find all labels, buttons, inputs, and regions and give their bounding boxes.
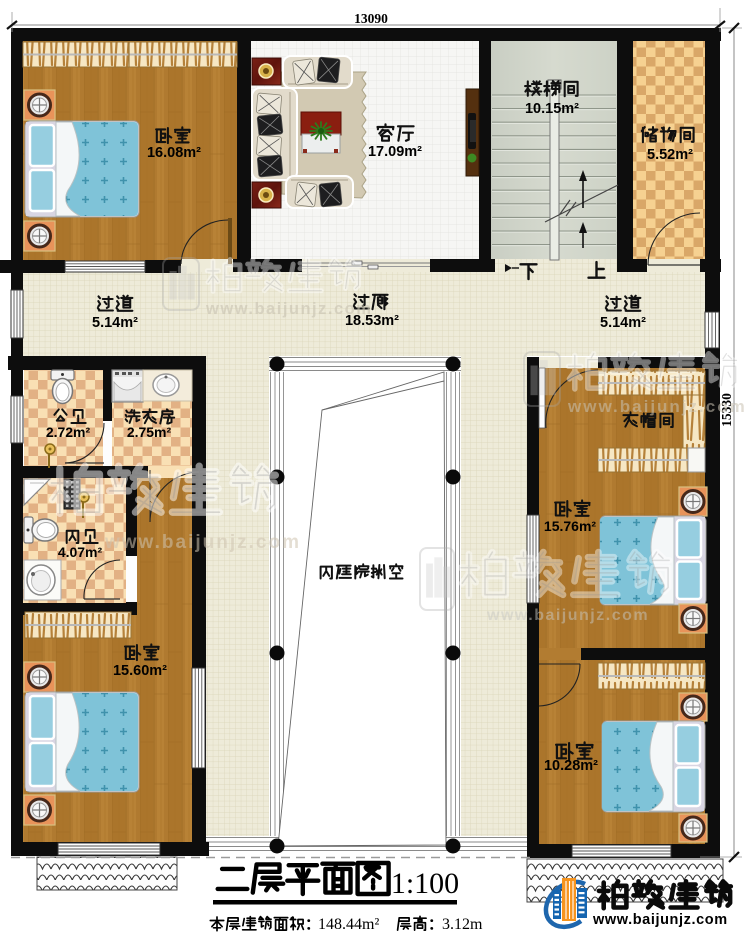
svg-text:5.14m²: 5.14m² [92, 315, 138, 331]
svg-text:www.baijunjz.com: www.baijunjz.com [592, 912, 728, 928]
svg-text:：: ： [428, 917, 443, 933]
svg-text:www.baijunjz.com: www.baijunjz.com [104, 532, 301, 553]
svg-text:15.76m²: 15.76m² [544, 518, 596, 534]
svg-text:10.15m²: 10.15m² [525, 101, 579, 117]
svg-text:www.baijunjz.com: www.baijunjz.com [486, 607, 649, 624]
svg-text:2.75m²: 2.75m² [127, 424, 172, 440]
svg-text:17.09m²: 17.09m² [368, 144, 422, 160]
svg-text:16.08m²: 16.08m² [147, 145, 201, 161]
svg-text:1:100: 1:100 [391, 867, 459, 900]
svg-text:4.07m²: 4.07m² [58, 544, 103, 560]
svg-text:148.44m²: 148.44m² [318, 916, 379, 933]
svg-text:10.28m²: 10.28m² [544, 758, 598, 774]
svg-text:www.baijunjz.com: www.baijunjz.com [567, 397, 747, 416]
svg-text:15.60m²: 15.60m² [113, 663, 167, 679]
svg-text:3.12m: 3.12m [442, 916, 483, 933]
svg-text:www.baijunjz.com: www.baijunjz.com [205, 300, 372, 318]
svg-text:5.52m²: 5.52m² [647, 147, 693, 163]
svg-text:2.72m²: 2.72m² [46, 424, 91, 440]
svg-text:13090: 13090 [354, 11, 388, 26]
svg-text:5.14m²: 5.14m² [600, 315, 646, 331]
